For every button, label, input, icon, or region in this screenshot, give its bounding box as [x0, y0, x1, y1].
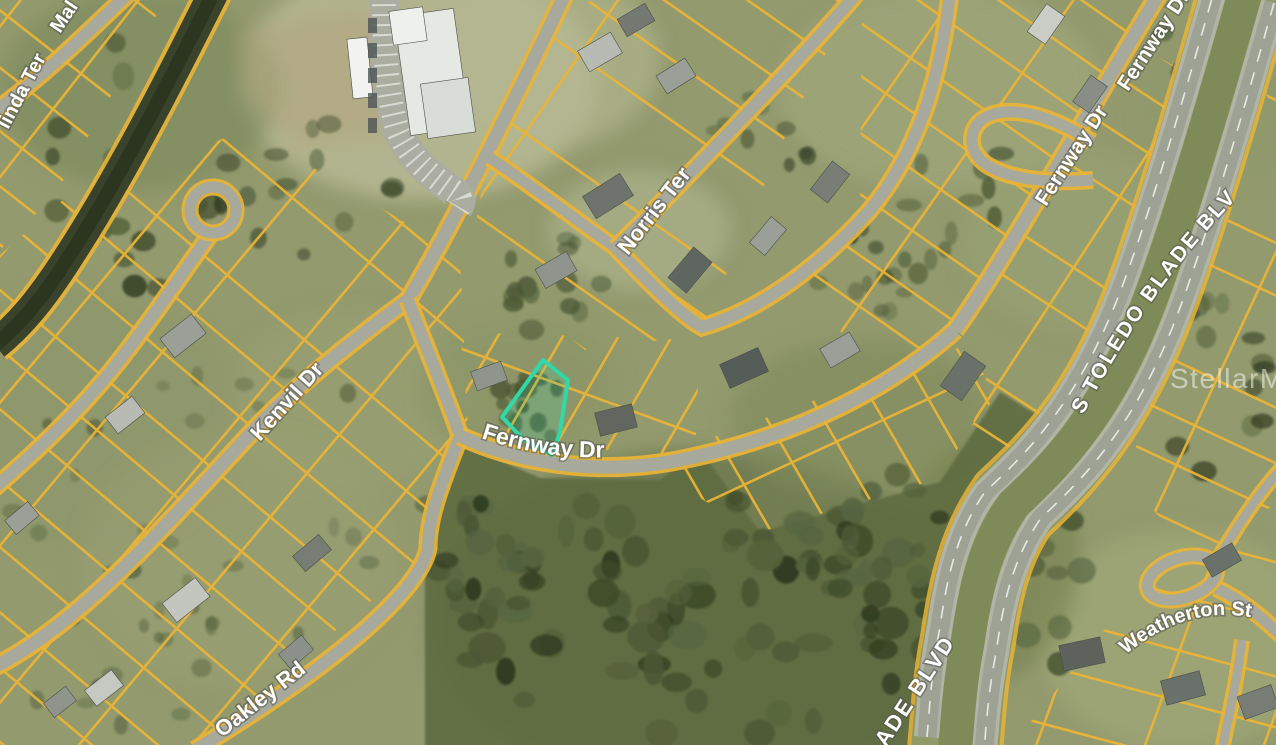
tree-canopy [498, 552, 527, 572]
tree-canopy [848, 282, 864, 300]
tree-canopy [530, 634, 563, 656]
building [420, 77, 475, 138]
listing-map-image: linda Ter Mal Norris Ter Kenvil Dr Fernw… [0, 0, 1276, 745]
satellite-parcel-map: linda Ter Mal Norris Ter Kenvil Dr Fernw… [0, 0, 1276, 745]
tree-canopy [268, 185, 285, 200]
tree-canopy [465, 578, 481, 601]
tree-canopy [871, 556, 893, 580]
tree-canopy [573, 493, 600, 519]
watermark-stellarmls: StellarMLS [1170, 363, 1276, 394]
tree-canopy [514, 692, 535, 708]
tree-canopy [747, 539, 784, 571]
tree-canopy [345, 528, 362, 547]
tree-canopy [741, 578, 759, 608]
tree-canopy [882, 673, 901, 695]
tree-canopy [335, 212, 354, 232]
parked-car [368, 118, 377, 133]
tree-canopy [458, 613, 485, 632]
tree-canopy [725, 491, 751, 512]
tree-canopy [945, 221, 958, 245]
tree-canopy [911, 543, 925, 557]
tree-canopy [560, 298, 580, 314]
tree-canopy [466, 529, 495, 555]
tree-canopy [863, 581, 891, 609]
tree-canopy [604, 505, 635, 539]
tree-canopy [113, 63, 134, 91]
tree-canopy [171, 708, 190, 721]
tree-canopy [156, 381, 169, 391]
tree-canopy [340, 384, 357, 403]
tree-canopy [558, 516, 574, 548]
tree-canopy [908, 263, 928, 285]
tree-canopy [1196, 326, 1216, 349]
tree-canopy [665, 580, 692, 606]
tree-canopy [741, 129, 755, 148]
tree-canopy [766, 700, 792, 727]
tree-canopy [869, 639, 898, 660]
tree-canopy [587, 579, 619, 608]
tree-canopy [784, 158, 795, 172]
tree-canopy [1242, 332, 1265, 344]
tree-canopy [1215, 293, 1230, 314]
tree-canopy [496, 658, 516, 686]
tree-canopy [235, 378, 254, 391]
tree-canopy [805, 708, 822, 734]
tree-canopy [906, 565, 930, 588]
tree-canopy [205, 616, 217, 635]
tree-canopy [30, 525, 47, 542]
tree-canopy [806, 557, 820, 581]
tree-canopy [139, 619, 149, 633]
tree-canopy [783, 511, 816, 536]
tree-canopy [122, 275, 147, 298]
tree-canopy [903, 483, 927, 498]
tree-canopy [523, 283, 540, 304]
tree-canopy [734, 636, 755, 661]
tree-canopy [882, 302, 898, 320]
tree-canopy [264, 148, 289, 161]
tree-canopy [191, 659, 211, 678]
tree-canopy [704, 659, 723, 678]
tree-canopy [591, 276, 612, 293]
tree-canopy [329, 518, 340, 537]
tree-canopy [506, 596, 530, 611]
tree-canopy [868, 241, 884, 254]
tree-canopy [842, 525, 859, 549]
tree-canopy [885, 463, 911, 487]
tree-canopy [519, 320, 544, 341]
tree-canopy [456, 500, 471, 526]
tree-canopy [558, 242, 579, 256]
tree-canopy [297, 248, 311, 260]
tree-canopy [835, 545, 859, 565]
tree-canopy [898, 252, 912, 268]
tree-canopy [828, 579, 853, 599]
tree-canopy [584, 527, 604, 551]
tree-canopy [1048, 615, 1072, 639]
tree-canopy [447, 567, 464, 593]
tree-canopy [46, 148, 60, 166]
tree-canopy [216, 154, 240, 172]
tree-canopy [627, 620, 665, 653]
tree-canopy [858, 559, 873, 578]
tree-canopy [861, 605, 879, 623]
parked-car [368, 93, 377, 108]
tree-canopy [519, 572, 546, 590]
tree-canopy [982, 177, 996, 200]
tree-canopy [635, 603, 658, 624]
tree-canopy [661, 673, 692, 693]
tree-canopy [468, 632, 506, 663]
tree-canopy [381, 178, 405, 198]
tree-canopy [485, 587, 505, 608]
tree-canopy [473, 495, 489, 513]
tree-canopy [724, 529, 749, 546]
tree-canopy [359, 556, 379, 569]
tree-canopy [924, 249, 937, 270]
tree-canopy [794, 634, 833, 653]
tree-canopy [605, 662, 640, 680]
tree-canopy [593, 561, 622, 582]
tree-canopy [667, 620, 707, 649]
tree-canopy [185, 413, 205, 429]
tree-canopy [507, 282, 523, 300]
parked-car [368, 18, 377, 33]
tree-canopy [622, 536, 649, 567]
tree-canopy [105, 33, 125, 53]
tree-canopy [505, 250, 517, 267]
tree-canopy [930, 510, 949, 524]
tree-canopy [317, 115, 342, 133]
tree-canopy [863, 622, 878, 639]
tree-canopy [1046, 566, 1068, 580]
tree-canopy [841, 498, 865, 523]
tree-canopy [772, 641, 800, 662]
tree-canopy [685, 688, 708, 712]
tree-canopy [44, 199, 69, 222]
building [389, 7, 427, 45]
tree-canopy [1067, 558, 1095, 584]
parked-car [368, 68, 377, 83]
tree-canopy [643, 650, 663, 685]
tree-canopy [309, 149, 324, 171]
tree-canopy [1251, 414, 1274, 429]
parked-car [368, 43, 377, 58]
tree-canopy [896, 199, 922, 212]
tree-canopy [434, 552, 459, 568]
tree-canopy [603, 616, 630, 633]
tree-canopy [800, 146, 816, 165]
